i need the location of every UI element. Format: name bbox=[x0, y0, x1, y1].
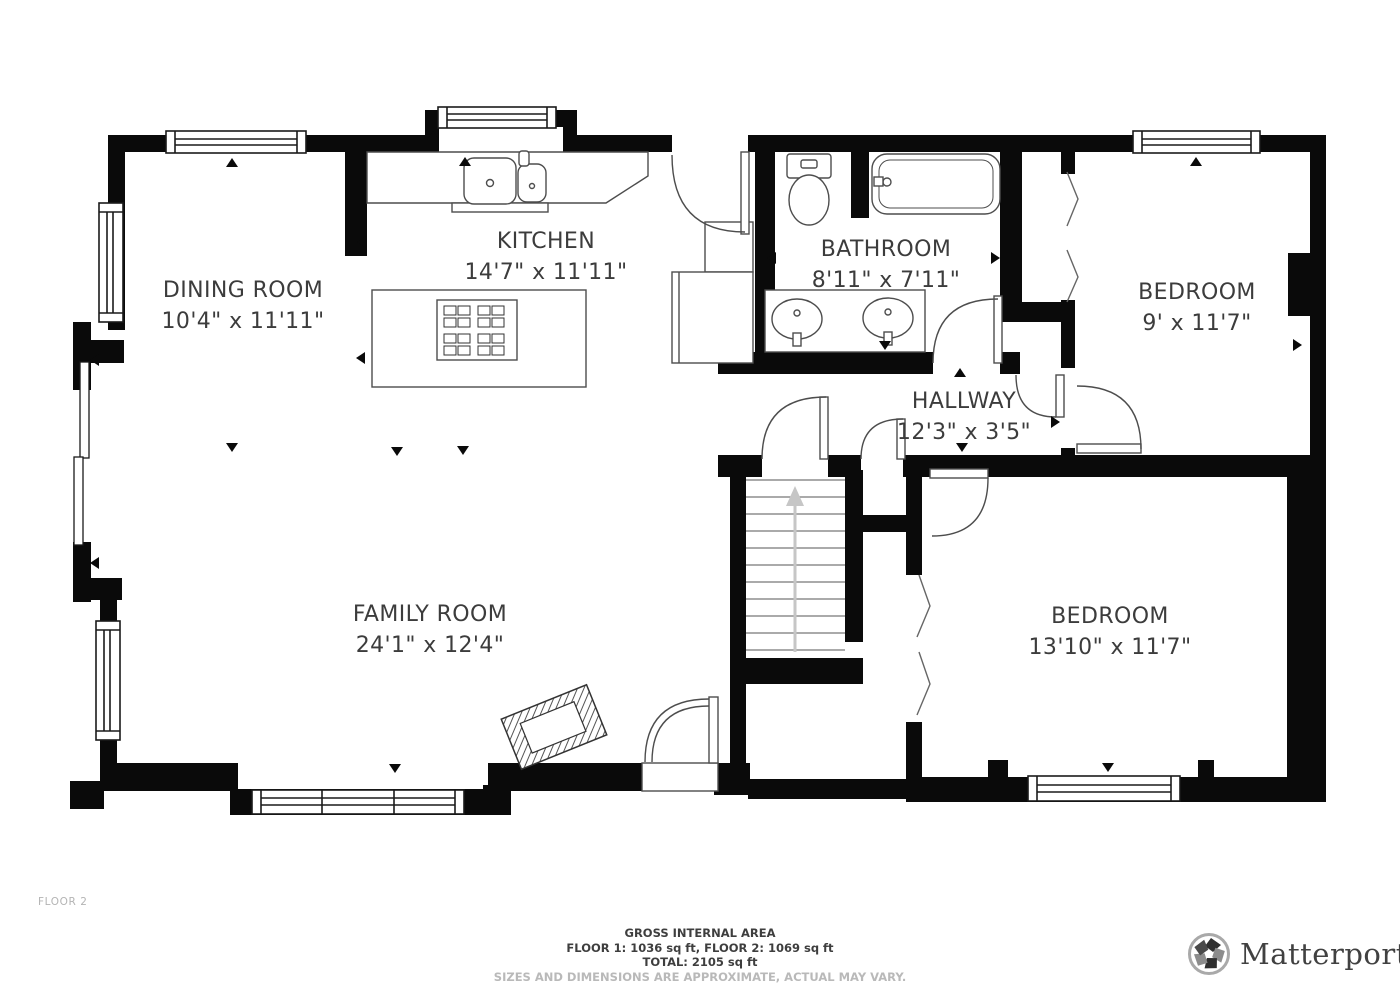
walls bbox=[70, 110, 1326, 815]
room-dims: 10'4" x 11'11" bbox=[162, 306, 325, 337]
room-dims: 13'10" x 11'7" bbox=[1029, 632, 1192, 663]
toilet-icon bbox=[787, 154, 831, 225]
window-kitchen-bay bbox=[438, 107, 556, 128]
room-label-bedroom1: BEDROOM 9' x 11'7" bbox=[1138, 277, 1256, 339]
room-dims: 8'11" x 7'11" bbox=[812, 265, 961, 296]
room-name: BEDROOM bbox=[1029, 601, 1192, 632]
room-label-bedroom2: BEDROOM 13'10" x 11'7" bbox=[1029, 601, 1192, 663]
room-dims: 24'1" x 12'4" bbox=[353, 630, 507, 661]
door-bedroom1 bbox=[1077, 386, 1141, 453]
floor-plan-page: DINING ROOM 10'4" x 11'11" KITCHEN 14'7"… bbox=[0, 0, 1400, 989]
room-label-family-room: FAMILY ROOM 24'1" x 12'4" bbox=[353, 599, 507, 661]
window-bedroom1 bbox=[1133, 131, 1260, 153]
room-name: KITCHEN bbox=[465, 226, 628, 257]
window-family-left bbox=[96, 621, 120, 740]
door-stairs bbox=[762, 397, 828, 459]
matterport-logo: Matterport ® bbox=[1186, 931, 1400, 977]
room-name: FAMILY ROOM bbox=[353, 599, 507, 630]
door-bathroom bbox=[933, 296, 1002, 363]
stairs bbox=[746, 480, 845, 652]
door-bedroom2 bbox=[930, 469, 988, 536]
coffee-table bbox=[501, 685, 607, 770]
window-family-bay bbox=[252, 790, 464, 814]
stairs-up-arrow-icon bbox=[786, 486, 804, 652]
entry-door bbox=[642, 697, 718, 791]
vanity-double-sink bbox=[765, 290, 925, 352]
room-name: BATHROOM bbox=[812, 234, 961, 265]
room-dims: 9' x 11'7" bbox=[1138, 308, 1256, 339]
room-dims: 12'3" x 3'5" bbox=[897, 417, 1031, 448]
window-bedroom2 bbox=[1028, 776, 1180, 801]
floor-plan-drawing bbox=[0, 0, 1400, 989]
room-name: BEDROOM bbox=[1138, 277, 1256, 308]
room-label-bathroom: BATHROOM 8'11" x 7'11" bbox=[812, 234, 961, 296]
room-label-kitchen: KITCHEN 14'7" x 11'11" bbox=[465, 226, 628, 288]
window-dining bbox=[166, 131, 306, 153]
matterport-logo-icon bbox=[1186, 931, 1232, 977]
room-label-hallway: HALLWAY 12'3" x 3'5" bbox=[897, 386, 1031, 448]
room-dims: 14'7" x 11'11" bbox=[465, 257, 628, 288]
kitchen-island bbox=[372, 290, 586, 387]
matterport-logo-text: Matterport bbox=[1240, 937, 1400, 971]
room-name: DINING ROOM bbox=[162, 275, 325, 306]
room-name: HALLWAY bbox=[897, 386, 1031, 417]
floor-label: FLOOR 2 bbox=[38, 896, 88, 908]
room-label-dining: DINING ROOM 10'4" x 11'11" bbox=[162, 275, 325, 337]
window-dining-left bbox=[99, 203, 123, 322]
refrigerator-icon bbox=[672, 272, 753, 363]
bathtub-icon bbox=[872, 154, 1000, 214]
